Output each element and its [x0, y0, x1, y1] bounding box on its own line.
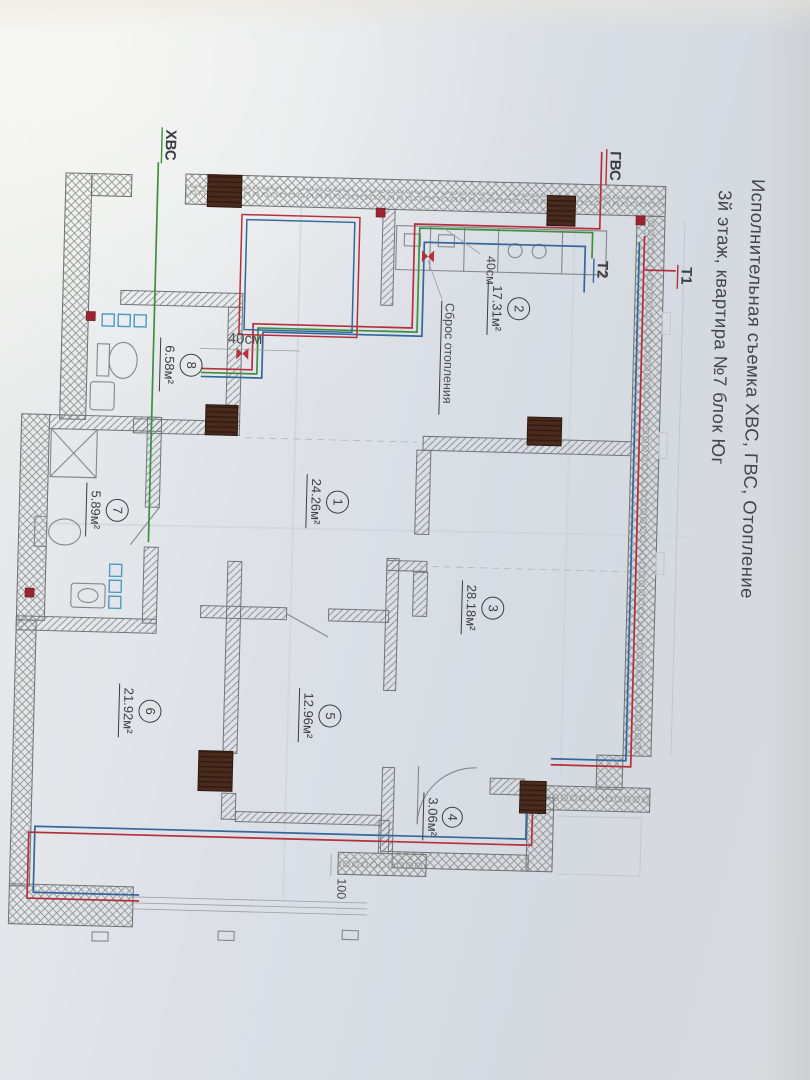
svg-text:17.31м²: 17.31м² [489, 285, 505, 332]
pipe-label-gvs: ГВС [606, 149, 624, 185]
svg-text:8: 8 [184, 361, 199, 369]
door-leaf [286, 614, 329, 637]
svg-text:1: 1 [330, 498, 345, 506]
room-label-3: 3 28.18м² [461, 580, 504, 635]
valve-icon [636, 216, 645, 225]
radiator-icon [519, 781, 546, 814]
svg-text:ГВС: ГВС [606, 151, 624, 181]
pipe-label-hvs: ХВС [161, 127, 179, 163]
photo-of-floor-plan: ХВС ГВС Т2 Т1 Сброс отопления 40см [0, 0, 810, 1080]
drawing-title: Исполнительная съемка ХВС, ГВС, Отоплени… [704, 178, 769, 599]
radiator-icon [527, 417, 562, 446]
radiator-icon [205, 405, 238, 436]
valve-icon [376, 208, 385, 217]
svg-text:28.18м²: 28.18м² [463, 585, 479, 632]
shower-icon [50, 429, 97, 478]
svg-text:40см: 40см [228, 330, 263, 348]
room-label-7: 7 5.89м² [86, 483, 129, 538]
room-label-8: 8 6.58м² [159, 337, 202, 392]
svg-text:Исполнительная съемка ХВС, ГВС: Исполнительная съемка ХВС, ГВС, Отоплени… [737, 179, 769, 599]
svg-text:ХВС: ХВС [161, 129, 179, 161]
vent-shaft-icon [102, 314, 146, 327]
svg-text:40см: 40см [483, 256, 498, 285]
toilet-icon [97, 342, 138, 379]
svg-text:3й этаж, квартира №7 блок Юг: 3й этаж, квартира №7 блок Юг [708, 190, 736, 465]
room-label-1: 1 24.26м² [306, 474, 349, 529]
svg-text:3: 3 [486, 604, 501, 612]
room-label-5: 5 12.96м² [298, 688, 341, 743]
radiator-icon [207, 175, 242, 208]
radiator-icon [198, 751, 233, 792]
radiator-icon [547, 195, 576, 226]
room-label-6: 6 21.92м² [118, 683, 161, 738]
valve-icon [25, 588, 34, 597]
svg-text:Т1: Т1 [677, 267, 694, 285]
svg-text:6: 6 [143, 707, 158, 715]
svg-text:5.89м²: 5.89м² [88, 490, 104, 530]
room-label-2: 2 17.31м² [487, 281, 530, 336]
vent-shaft-icon [109, 564, 122, 608]
pipe-label-t2: Т2 [593, 259, 611, 283]
room-label-4: 4 3.06м² [423, 792, 463, 841]
svg-text:21.92м²: 21.92м² [120, 688, 136, 735]
svg-text:Сброс отопления: Сброс отопления [440, 303, 457, 404]
svg-text:12.96м²: 12.96м² [300, 692, 316, 739]
svg-text:6.58м²: 6.58м² [162, 345, 178, 385]
floor-plan: ХВС ГВС Т2 Т1 Сброс отопления 40см [0, 0, 810, 1080]
svg-text:7: 7 [110, 507, 125, 515]
svg-text:3.06м²: 3.06м² [425, 797, 441, 837]
svg-text:100: 100 [334, 878, 349, 899]
svg-text:5: 5 [323, 712, 338, 720]
washbasin-icon [90, 382, 115, 411]
valve-icon [86, 311, 95, 320]
svg-text:24.26м²: 24.26м² [308, 478, 324, 525]
svg-text:2: 2 [512, 305, 527, 313]
annotation-dim40-a: 40см [443, 229, 498, 285]
svg-text:4: 4 [445, 813, 460, 821]
annotation-drain: Сброс отопления [424, 260, 458, 415]
pipe-label-t1: Т1 [677, 265, 695, 289]
sink-icon [71, 583, 106, 608]
svg-text:Т2: Т2 [593, 261, 610, 279]
walls-interior [11, 200, 637, 832]
